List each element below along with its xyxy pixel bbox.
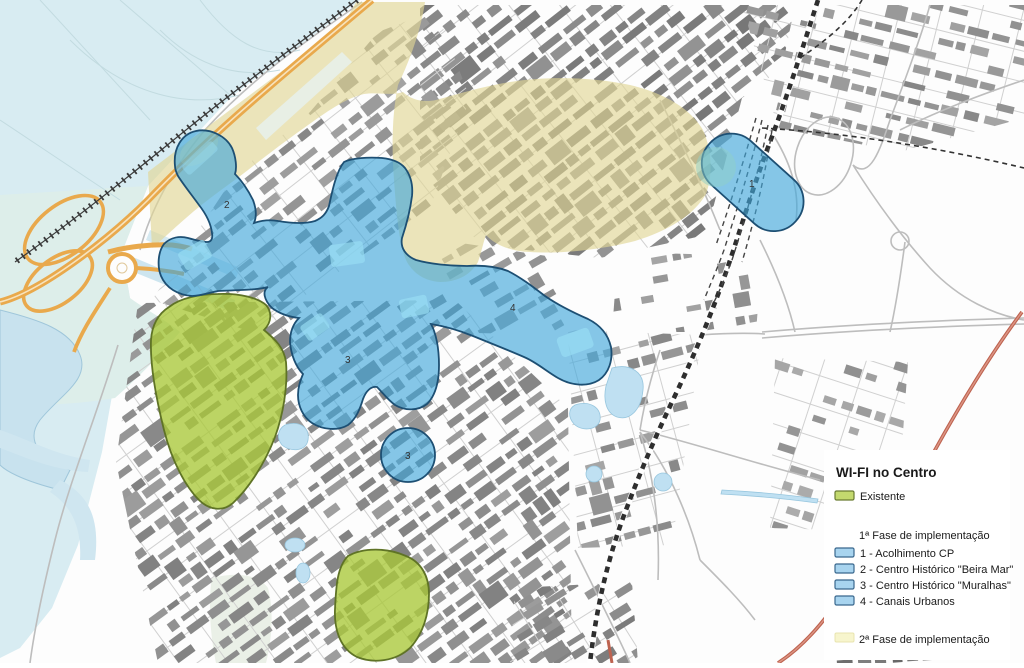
svg-text:2 - Centro Histórico "Beira Ma: 2 - Centro Histórico "Beira Mar" <box>860 564 1013 576</box>
svg-text:3: 3 <box>405 451 411 462</box>
svg-text:1ª Fase de implementação: 1ª Fase de implementação <box>859 530 990 542</box>
svg-text:WI-FI no Centro: WI-FI no Centro <box>836 465 936 480</box>
svg-text:2: 2 <box>224 200 230 211</box>
svg-text:4: 4 <box>510 303 516 314</box>
svg-text:Existente: Existente <box>860 491 905 503</box>
svg-text:4 - Canais Urbanos: 4 - Canais Urbanos <box>860 596 955 608</box>
svg-text:3: 3 <box>345 355 351 366</box>
svg-text:3 - Centro Histórico "Muralhas: 3 - Centro Histórico "Muralhas" <box>860 580 1011 592</box>
svg-text:1: 1 <box>749 179 755 190</box>
svg-text:1 - Acolhimento CP: 1 - Acolhimento CP <box>860 548 954 560</box>
svg-text:2ª Fase de implementação: 2ª Fase de implementação <box>859 634 990 646</box>
